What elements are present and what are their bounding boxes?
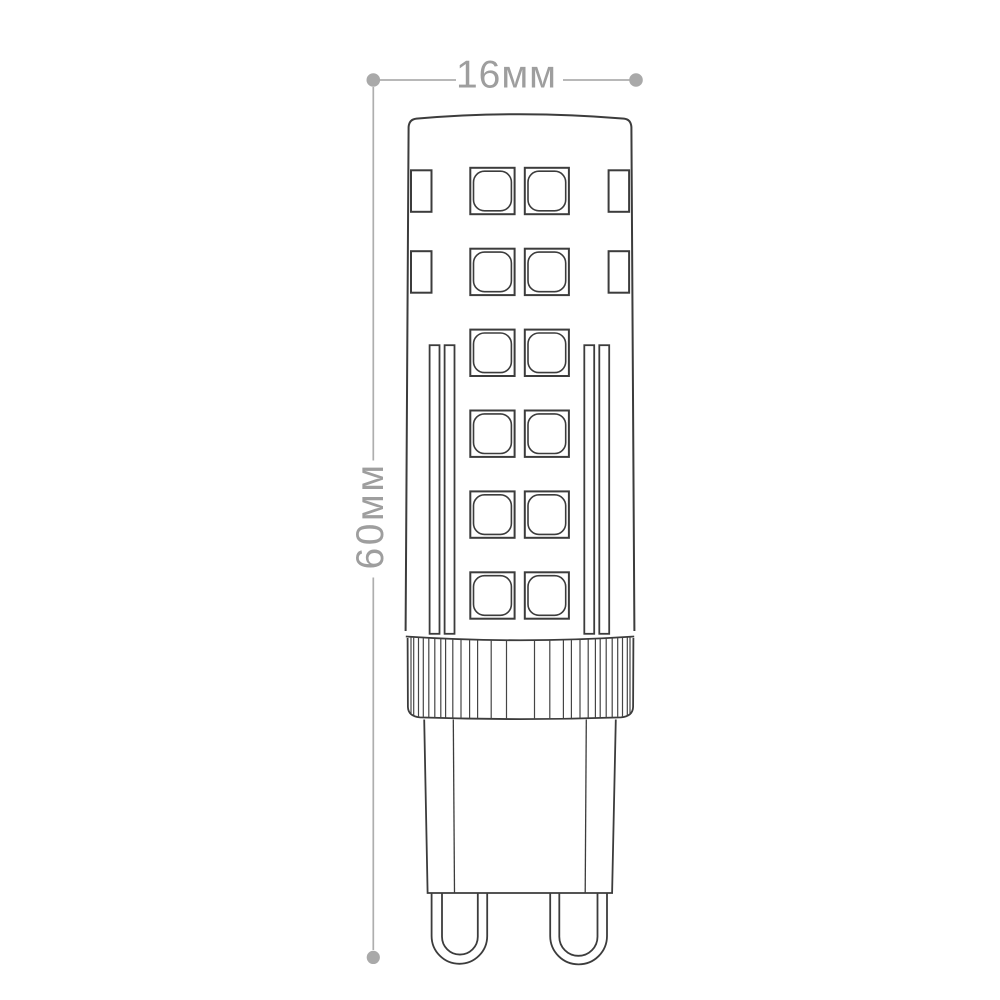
svg-text:60мм: 60мм — [349, 462, 392, 569]
svg-text:16мм: 16мм — [456, 54, 557, 97]
